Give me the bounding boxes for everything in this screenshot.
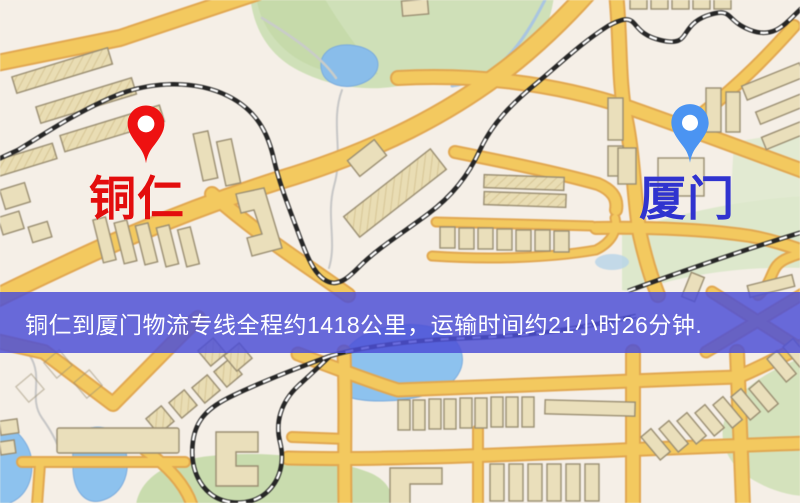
origin-label: 铜仁 [67,174,207,223]
route-info-banner: 铜仁到厦门物流专线全程约1418公里，运输时间约21小时26分钟. [0,292,800,353]
destination-label: 厦门 [617,174,757,223]
destination-pin-icon [668,103,712,167]
route-info-text: 铜仁到厦门物流专线全程约1418公里，运输时间约21小时26分钟. [25,306,702,340]
map-canvas [0,0,800,503]
origin-pin-icon [125,104,167,168]
map-page: 铜仁 厦门 铜仁到厦门物流专线全程约1418公里，运输时间约21小时26分钟. [0,0,800,503]
